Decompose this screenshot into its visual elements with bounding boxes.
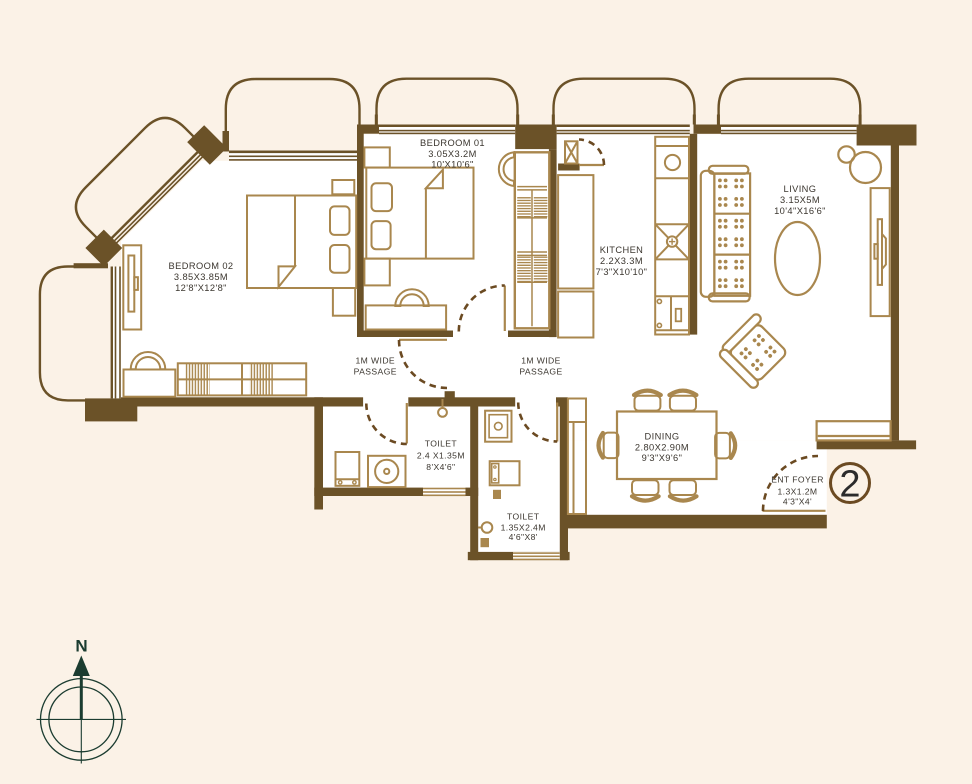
svg-text:TOILET: TOILET bbox=[507, 511, 540, 521]
svg-text:3.15X5M: 3.15X5M bbox=[780, 195, 820, 205]
svg-text:10'4"X16'6": 10'4"X16'6" bbox=[774, 206, 826, 216]
svg-text:DINING: DINING bbox=[645, 432, 680, 442]
svg-text:PASSAGE: PASSAGE bbox=[354, 367, 397, 377]
svg-text:12'8"X12'8": 12'8"X12'8" bbox=[175, 283, 227, 293]
svg-text:10'X10'6": 10'X10'6" bbox=[431, 159, 474, 169]
svg-text:2.80X2.90M: 2.80X2.90M bbox=[635, 443, 689, 453]
svg-text:BEDROOM 02: BEDROOM 02 bbox=[169, 261, 234, 271]
svg-text:2: 2 bbox=[839, 463, 860, 505]
svg-text:4'3"X4': 4'3"X4' bbox=[783, 497, 812, 507]
svg-text:ENT FOYER: ENT FOYER bbox=[771, 474, 824, 484]
svg-text:2.2X3.3M: 2.2X3.3M bbox=[600, 256, 643, 266]
svg-text:TOILET: TOILET bbox=[425, 439, 458, 449]
svg-text:PASSAGE: PASSAGE bbox=[519, 367, 562, 377]
svg-text:3.05X3.2M: 3.05X3.2M bbox=[428, 149, 477, 159]
svg-text:9'3"X9'6": 9'3"X9'6" bbox=[642, 453, 683, 463]
svg-text:4'6"X8': 4'6"X8' bbox=[509, 532, 538, 542]
svg-text:2.4 X1.35M: 2.4 X1.35M bbox=[417, 450, 465, 460]
svg-text:KITCHEN: KITCHEN bbox=[600, 245, 644, 255]
svg-text:3.85X3.85M: 3.85X3.85M bbox=[174, 272, 228, 282]
svg-text:LIVING: LIVING bbox=[784, 184, 817, 194]
svg-text:BEDROOM 01: BEDROOM 01 bbox=[420, 138, 485, 148]
svg-text:N: N bbox=[75, 637, 87, 656]
svg-text:8'X4'6": 8'X4'6" bbox=[426, 462, 455, 472]
svg-text:1M WIDE: 1M WIDE bbox=[521, 356, 561, 366]
svg-text:1.3X1.2M: 1.3X1.2M bbox=[778, 486, 818, 496]
svg-text:7'3"X10'10": 7'3"X10'10" bbox=[596, 267, 648, 277]
svg-text:1M WIDE: 1M WIDE bbox=[356, 356, 396, 366]
